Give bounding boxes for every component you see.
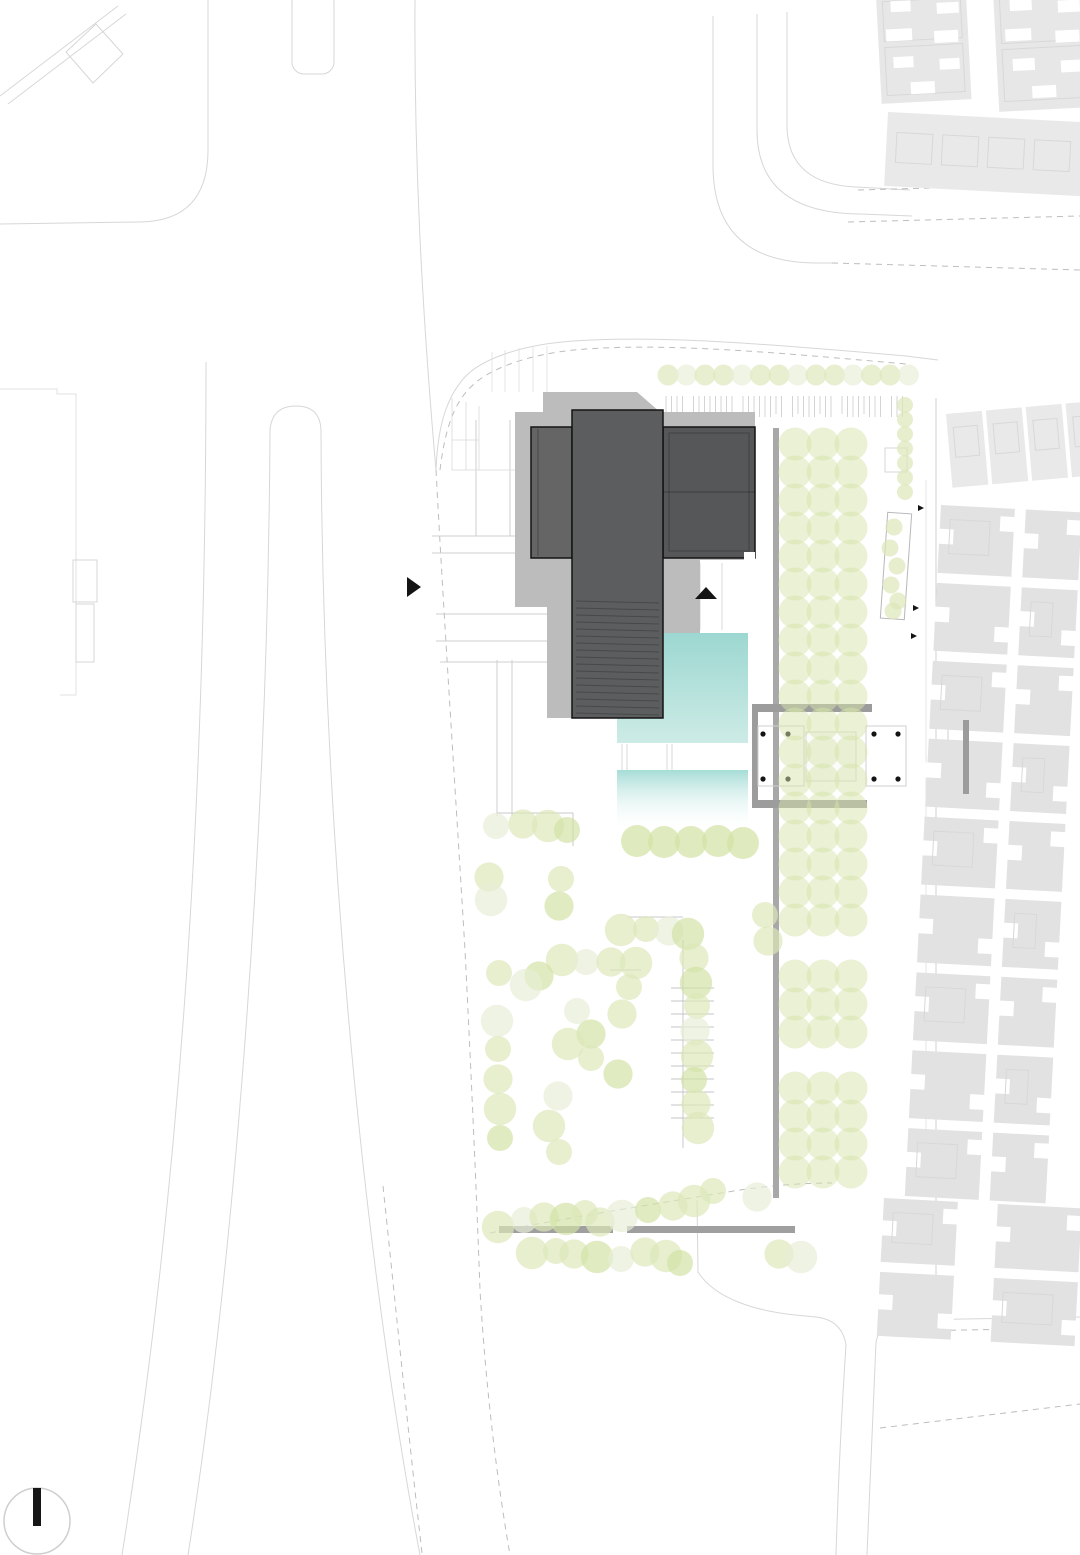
block-notch xyxy=(943,1209,960,1225)
column-dot xyxy=(871,731,876,736)
block-notch xyxy=(911,81,936,94)
garden-tree xyxy=(700,1178,726,1204)
block-notch xyxy=(1014,689,1031,705)
gate-axis-bar xyxy=(963,720,969,794)
garden-tree xyxy=(681,1040,713,1072)
minor-entry-arrow xyxy=(918,505,924,511)
block-notch xyxy=(986,783,1003,799)
block-notch xyxy=(967,1139,984,1155)
roof-notch xyxy=(744,552,755,560)
block-notch xyxy=(975,984,992,1000)
road-line xyxy=(8,14,126,104)
reflecting-pool-lower xyxy=(617,770,748,832)
courtyard-band xyxy=(946,400,1080,487)
garden-tree xyxy=(486,960,512,986)
street-tree xyxy=(713,365,734,386)
right-field-upper xyxy=(903,505,1080,1204)
column-dot xyxy=(871,776,876,781)
west-entry-arrow xyxy=(407,577,421,597)
block-notch xyxy=(912,996,929,1012)
road-dashed-line xyxy=(880,1404,1080,1428)
street-tree xyxy=(732,365,753,386)
garden-tree xyxy=(483,813,509,839)
block-notch xyxy=(993,1078,1010,1094)
block-notch xyxy=(890,0,911,12)
garden-tree xyxy=(573,949,599,975)
garden-tree xyxy=(483,1064,512,1093)
block-notch xyxy=(939,58,960,70)
block-notch xyxy=(904,1152,921,1168)
block-notch xyxy=(876,1294,893,1310)
column-dot xyxy=(895,776,900,781)
site-plan-canvas xyxy=(0,0,1080,1555)
garden-tree xyxy=(544,891,573,920)
street-tree xyxy=(658,365,679,386)
garden-tree xyxy=(752,902,778,928)
block-notch xyxy=(1061,59,1080,72)
block-notch xyxy=(978,938,995,954)
block-notch xyxy=(1058,0,1080,13)
residential-block-base xyxy=(884,112,1080,196)
minor-entry-arrow xyxy=(911,633,917,639)
block-notch xyxy=(1032,85,1057,98)
block-notch xyxy=(1061,630,1078,646)
street-tree xyxy=(750,365,771,386)
top-right-slab xyxy=(884,112,1080,196)
block-notch xyxy=(994,1226,1011,1242)
garden-tree xyxy=(785,1241,817,1273)
garden-tree xyxy=(475,884,507,916)
road-outline-rect xyxy=(292,0,334,74)
block-notch xyxy=(933,607,950,623)
courtyard-block xyxy=(1026,404,1068,481)
road-line xyxy=(836,1345,846,1555)
minor-entry-arrow xyxy=(913,605,919,611)
garden-tree xyxy=(485,1036,511,1062)
bosque-tree xyxy=(835,904,868,937)
garden-tree xyxy=(608,1246,634,1272)
garden-tree xyxy=(616,974,642,1000)
avenue-edge-bar xyxy=(773,428,779,1198)
garden-tree xyxy=(533,1110,565,1142)
block-notch xyxy=(1009,0,1032,11)
block-notch xyxy=(992,672,1009,688)
top-right-cluster-b xyxy=(993,0,1080,112)
block-notch xyxy=(1050,831,1067,847)
garden-tree xyxy=(481,1005,513,1037)
block-notch xyxy=(969,1094,986,1110)
block-notch xyxy=(908,1074,925,1090)
block-notch xyxy=(934,30,959,43)
block-notch xyxy=(990,1300,1007,1316)
garden-tree xyxy=(607,999,636,1028)
street-tree xyxy=(861,365,882,386)
block-notch xyxy=(937,1313,954,1329)
garden-tree xyxy=(681,1067,707,1093)
block-notch xyxy=(937,529,954,545)
garden-tree xyxy=(682,1112,714,1144)
courtyard-block xyxy=(986,407,1028,484)
north-arrow xyxy=(4,1488,70,1554)
garden-tree xyxy=(603,1059,632,1088)
road-outline-rect xyxy=(73,560,97,602)
top-right-cluster-a xyxy=(876,0,972,104)
block-notch xyxy=(1018,611,1035,627)
garden-tree xyxy=(484,1093,516,1125)
garden-tree xyxy=(753,926,782,955)
garden-tree xyxy=(548,866,574,892)
block-notch xyxy=(886,28,913,41)
street-tree xyxy=(897,441,913,457)
residential-blocks-layer xyxy=(875,0,1080,1346)
road-line xyxy=(867,1342,876,1555)
road-dashed-line xyxy=(832,263,1080,270)
column-dot xyxy=(760,776,765,781)
garden-tree xyxy=(546,1139,572,1165)
block-notch xyxy=(1022,533,1039,549)
block-notch xyxy=(1061,1320,1078,1336)
garden-tree xyxy=(635,1197,661,1223)
street-tree xyxy=(897,426,913,442)
block-notch xyxy=(880,1220,897,1236)
garden-tree xyxy=(510,969,542,1001)
site-plan xyxy=(0,0,1080,1555)
block-notch xyxy=(1005,28,1032,41)
road-line xyxy=(188,430,270,1555)
road-line xyxy=(270,406,321,430)
pavilion-wall xyxy=(752,704,758,808)
courtyard-block xyxy=(1066,400,1080,477)
street-tree xyxy=(897,412,913,428)
road-line xyxy=(795,1315,846,1345)
garden-tree xyxy=(564,998,590,1024)
block-notch xyxy=(921,840,938,856)
right-field-lower xyxy=(875,1198,1080,1346)
block-notch xyxy=(925,762,942,778)
street-tree xyxy=(897,397,913,413)
column-dot xyxy=(760,731,765,736)
street-tree xyxy=(676,365,697,386)
garden-tree xyxy=(605,914,637,946)
garden-tree xyxy=(620,947,652,979)
block-notch xyxy=(1006,845,1023,861)
street-tree xyxy=(787,365,808,386)
block-notch xyxy=(1058,676,1075,692)
block-notch xyxy=(1000,516,1017,532)
block-notch xyxy=(893,56,914,68)
block-notch xyxy=(1013,58,1036,71)
block-notch xyxy=(1001,923,1018,939)
strip-tree xyxy=(885,603,902,620)
bosque-tree xyxy=(835,1156,868,1189)
garden-tree xyxy=(667,1250,693,1276)
road-line xyxy=(122,362,206,1555)
garden-tree xyxy=(482,1211,514,1243)
strip-tree xyxy=(882,540,899,557)
block-notch xyxy=(1055,30,1080,43)
poolside-tree xyxy=(727,827,759,859)
site-south-bar-east xyxy=(627,1226,795,1233)
strip-tree xyxy=(889,558,906,575)
block-notch xyxy=(1067,520,1080,536)
road-line xyxy=(0,389,76,695)
block-notch xyxy=(1036,1098,1053,1114)
block-notch xyxy=(936,2,959,14)
block-notch xyxy=(1034,1143,1051,1159)
block-notch xyxy=(1010,767,1027,783)
road-dashed-line xyxy=(848,216,1080,222)
garden-tree xyxy=(578,1045,604,1071)
street-tree xyxy=(898,365,919,386)
block-notch xyxy=(929,684,946,700)
road-line xyxy=(0,6,118,96)
column-dot xyxy=(895,731,900,736)
bosque-tree xyxy=(835,1016,868,1049)
courtyard-block xyxy=(946,411,988,488)
street-tree xyxy=(897,455,913,471)
block-notch xyxy=(997,1000,1014,1016)
block-notch xyxy=(989,1156,1006,1172)
street-tree xyxy=(695,365,716,386)
street-tree xyxy=(843,365,864,386)
garden-tree xyxy=(543,1081,572,1110)
strip-tree xyxy=(886,519,903,536)
road-line xyxy=(713,16,832,263)
street-tree xyxy=(769,365,790,386)
street-tree xyxy=(897,484,913,500)
street-tree xyxy=(880,365,901,386)
street-tree xyxy=(824,365,845,386)
garden-tree xyxy=(487,1125,513,1151)
garden-tree xyxy=(606,1200,638,1232)
block-notch xyxy=(917,918,934,934)
road-outline-rect xyxy=(76,604,94,662)
block-notch xyxy=(1053,786,1070,802)
garden-tree xyxy=(742,1182,771,1211)
road-line xyxy=(415,0,436,470)
strip-tree xyxy=(883,577,900,594)
street-tree xyxy=(806,365,827,386)
garden-tree xyxy=(554,817,580,843)
street-tree xyxy=(897,470,913,486)
block-notch xyxy=(1044,942,1061,958)
block-notch xyxy=(983,828,1000,844)
west-wing xyxy=(531,427,572,558)
block-notch xyxy=(1042,987,1059,1003)
block-notch xyxy=(1067,1215,1080,1231)
garden-tree xyxy=(684,993,710,1019)
north-arrow-needle xyxy=(33,1488,41,1526)
block-notch xyxy=(994,627,1011,643)
road-line xyxy=(321,430,420,1555)
